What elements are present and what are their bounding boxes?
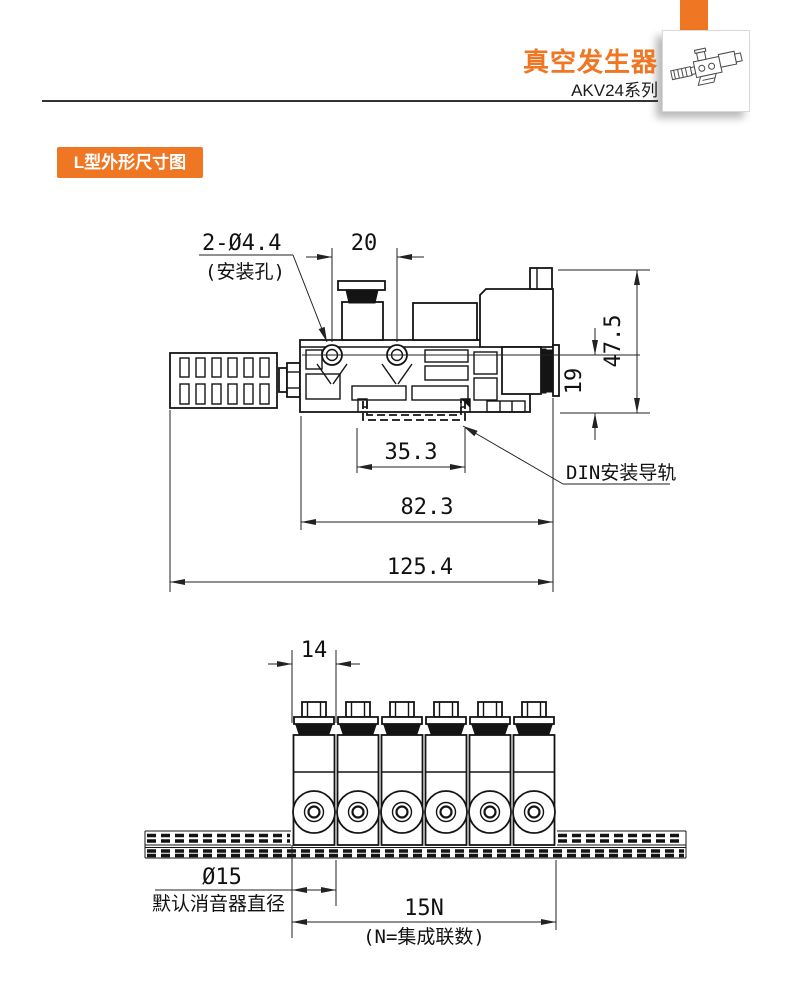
manifold-unit: [293, 702, 335, 845]
catalog-page: 真空发生器 AKV24系列 L型外形尺寸图: [0, 0, 800, 1000]
dimension-drawings: 2-Ø4.4 (安装孔) 20 47.5: [0, 0, 800, 1000]
dim-silencer-dia-note: 默认消音器直径: [152, 893, 285, 915]
dim-rail-width: 35.3: [385, 440, 438, 465]
manifold-unit: [381, 702, 423, 845]
dim-body-length: 82.3: [401, 495, 454, 520]
dim-hole-pitch: 20: [351, 231, 378, 256]
manifold-unit: [513, 702, 555, 845]
dim-silencer-dia: Ø15: [202, 865, 242, 890]
dim-unit-pitch: 14: [301, 638, 328, 663]
dim-axis-height: 19: [562, 368, 587, 395]
manifold-units: [293, 702, 555, 845]
din-rail-label: DIN安装导轨: [566, 462, 676, 484]
top-connector: [530, 268, 552, 289]
vacuum-fitting: [502, 345, 559, 396]
dim-total-width: 15N: [404, 896, 444, 921]
silencer-connector: [279, 363, 300, 397]
silencer: [170, 353, 277, 408]
manifold-unit: [469, 702, 511, 845]
front-view-diagram: 14 Ø15 默认消音器直径 15N (N=集成联数): [145, 638, 686, 948]
dim-total-length: 125.4: [387, 555, 453, 580]
dim-mount-holes-note: (安装孔): [205, 261, 285, 283]
dim-total-width-note: (N=集成联数): [363, 926, 485, 948]
dim-mount-holes: 2-Ø4.4: [202, 231, 281, 256]
inlet-fitting: [338, 281, 385, 340]
dim-total-height: 47.5: [601, 315, 626, 368]
side-view-diagram: 2-Ø4.4 (安装孔) 20 47.5: [170, 231, 676, 592]
solenoid-block: [480, 289, 553, 347]
manifold-unit: [337, 702, 379, 845]
manifold-unit: [425, 702, 467, 845]
